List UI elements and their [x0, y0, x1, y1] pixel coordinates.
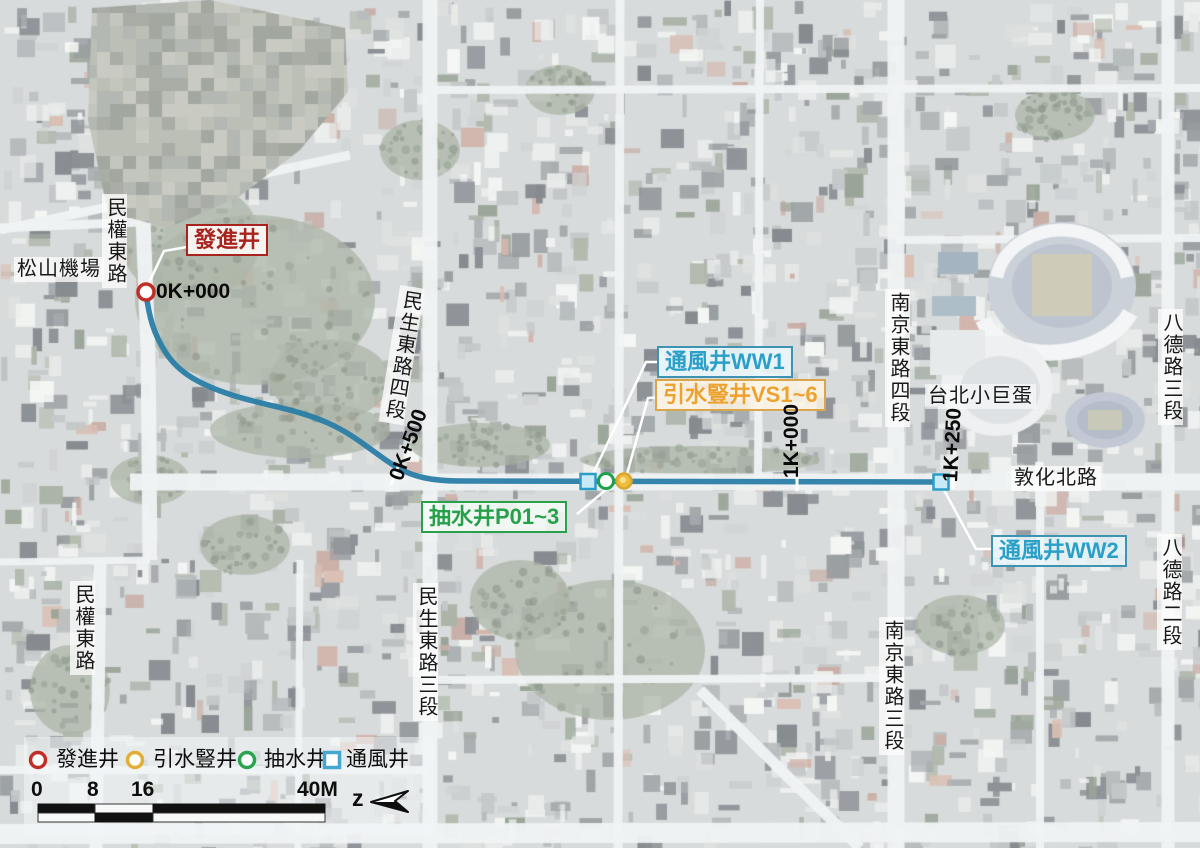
- chainage-1k250: 1K+250: [940, 405, 966, 486]
- tunnel-alignment-map: 松山機場 民權東路 民權東路 民生東路四段 民生東路三段 南京東路四段 南京東路…: [0, 0, 1200, 848]
- legend-pump-icon: [236, 749, 258, 771]
- legend-vent-label: 通風井: [346, 749, 409, 771]
- label-dunhua-n-rd: 敦化北路: [1011, 466, 1101, 491]
- legend-pump-label: 抽水井: [264, 749, 327, 771]
- legend-intake-label: 引水豎井: [153, 749, 237, 771]
- chainage-1k000: 1K+000: [781, 401, 803, 481]
- label-minsheng-e-rd-sec3: 民生東路三段: [413, 583, 438, 721]
- label-nanjing-e-rd-sec3: 南京東路三段: [879, 617, 904, 755]
- chainage-0k000: 0K+000: [156, 281, 230, 303]
- scale-tick-0: 0: [31, 779, 43, 801]
- shaft-label-ww2: 通風井WW2: [991, 535, 1127, 567]
- legend-vent-icon: [321, 749, 343, 771]
- label-songshan-airport: 松山機場: [14, 257, 104, 282]
- label-nanjing-e-rd-sec4: 南京東路四段: [885, 289, 910, 427]
- label-bade-rd-sec2: 八德路二段: [1157, 534, 1182, 650]
- shaft-label-launch: 發進井: [186, 224, 268, 256]
- label-minquan-e-rd-bottom: 民權東路: [70, 581, 95, 675]
- label-taipei-arena: 台北小巨蛋: [925, 384, 1036, 409]
- legend-launch-label: 發進井: [56, 749, 119, 771]
- legend-launch-icon: [27, 749, 49, 771]
- label-minquan-e-rd-top: 民權東路: [102, 194, 127, 288]
- shaft-label-pump: 抽水井P01~3: [421, 501, 567, 533]
- north-arrow-label: z: [352, 786, 364, 810]
- label-bade-rd-sec3: 八德路三段: [1158, 309, 1183, 425]
- scale-tick-8: 8: [87, 779, 99, 801]
- shaft-label-ww1: 通風井WW1: [657, 346, 793, 378]
- scale-tick-40m: 40M: [297, 779, 338, 801]
- scale-tick-16: 16: [131, 779, 154, 801]
- legend-intake-icon: [124, 749, 146, 771]
- satellite-basemap: [0, 0, 1200, 848]
